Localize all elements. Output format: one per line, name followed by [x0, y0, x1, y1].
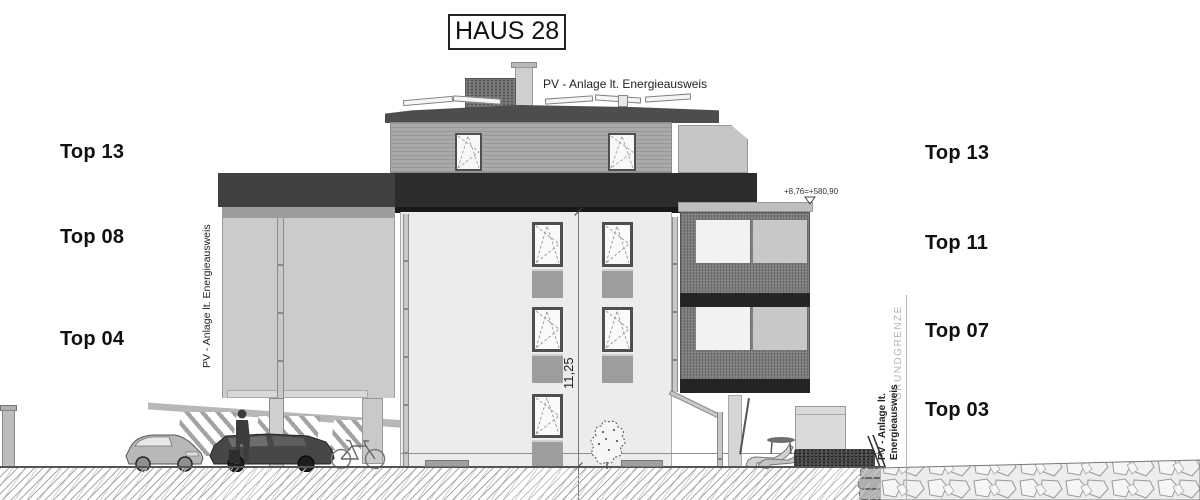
- spandrel-panel: [532, 440, 563, 467]
- floor-label-left-top04: Top 04: [60, 328, 124, 351]
- ground-hatch: [0, 468, 886, 500]
- floor-label-left-top13: Top 13: [60, 141, 124, 164]
- stair-overrun: [678, 125, 748, 173]
- page-title: HAUS 28: [455, 17, 559, 46]
- terrace-storage-box-seam: [796, 414, 845, 415]
- balcony-glass: [753, 220, 807, 263]
- floor-label-right-top07: Top 07: [925, 320, 989, 343]
- downpipe-right-lower: [717, 412, 723, 467]
- pv-right-label-line2: Energieausweis: [889, 396, 900, 460]
- spandrel-panel: [602, 269, 633, 298]
- parapet-left-wing: [218, 173, 397, 207]
- roof-slab: [385, 105, 719, 123]
- dimension-label: 11,25: [561, 333, 576, 389]
- facade-window: [602, 307, 633, 352]
- fence-post: [2, 410, 15, 467]
- floor-label-right-top03: Top 03: [925, 399, 989, 422]
- pv-panel-icon: [403, 96, 453, 106]
- parapet-left-strip: [222, 207, 395, 218]
- floor-label-right-top11: Top 11: [925, 232, 988, 255]
- balcony-slab-band: [680, 379, 810, 393]
- elevation-drawing: HAUS 28 PV - Anlage lt. Energieausweis T…: [0, 0, 1200, 500]
- facade-window: [602, 222, 633, 267]
- penthouse-window: [455, 133, 482, 171]
- facade-window: [532, 222, 563, 267]
- spandrel-panel: [532, 269, 563, 298]
- balcony-opening: [696, 307, 750, 350]
- terrace-storage-box: [795, 406, 846, 450]
- planter: [425, 460, 469, 467]
- pv-left-vertical-label: PV - Anlage lt. Energieausweis: [201, 232, 213, 368]
- penthouse-window: [608, 133, 636, 171]
- floor-label-left-top08: Top 08: [60, 226, 124, 249]
- elevation-triangle-icon: [804, 196, 816, 205]
- balcony-support-wall: [728, 395, 742, 467]
- roof-vent: [618, 95, 628, 107]
- person: [228, 408, 256, 470]
- pv-panel-icon: [545, 95, 593, 104]
- facade-window: [532, 394, 563, 438]
- balcony-opening: [696, 220, 750, 263]
- pv-top-label: PV - Anlage lt. Energieausweis: [543, 77, 707, 91]
- spandrel-panel: [602, 354, 633, 383]
- floor-label-right-top13: Top 13: [925, 142, 989, 165]
- terrace-table: [764, 436, 798, 456]
- balcony-glass: [753, 307, 807, 350]
- chimney-light: [515, 67, 533, 108]
- facade-window: [532, 307, 563, 352]
- stone-wall: [880, 456, 1200, 500]
- boundary-line: [906, 295, 907, 500]
- bicycle-icon: [328, 436, 390, 470]
- balcony-slab-band: [680, 293, 810, 307]
- dimension-line: [578, 212, 579, 500]
- downpipe-right: [672, 217, 678, 392]
- balcony-top-slab: [678, 202, 813, 212]
- spandrel-panel: [532, 354, 563, 383]
- downpipe-right-diagonal: [669, 390, 720, 418]
- elevation-label: +8,76=+580,90: [784, 187, 838, 196]
- pv-panel-icon: [645, 93, 691, 102]
- left-wing-wall: [222, 218, 395, 398]
- pv-right-label-line1: PV - Anlage lt.: [877, 396, 888, 460]
- downpipe-facade: [403, 214, 409, 467]
- left-wing-wall-base: [227, 390, 368, 398]
- tree: [586, 418, 630, 470]
